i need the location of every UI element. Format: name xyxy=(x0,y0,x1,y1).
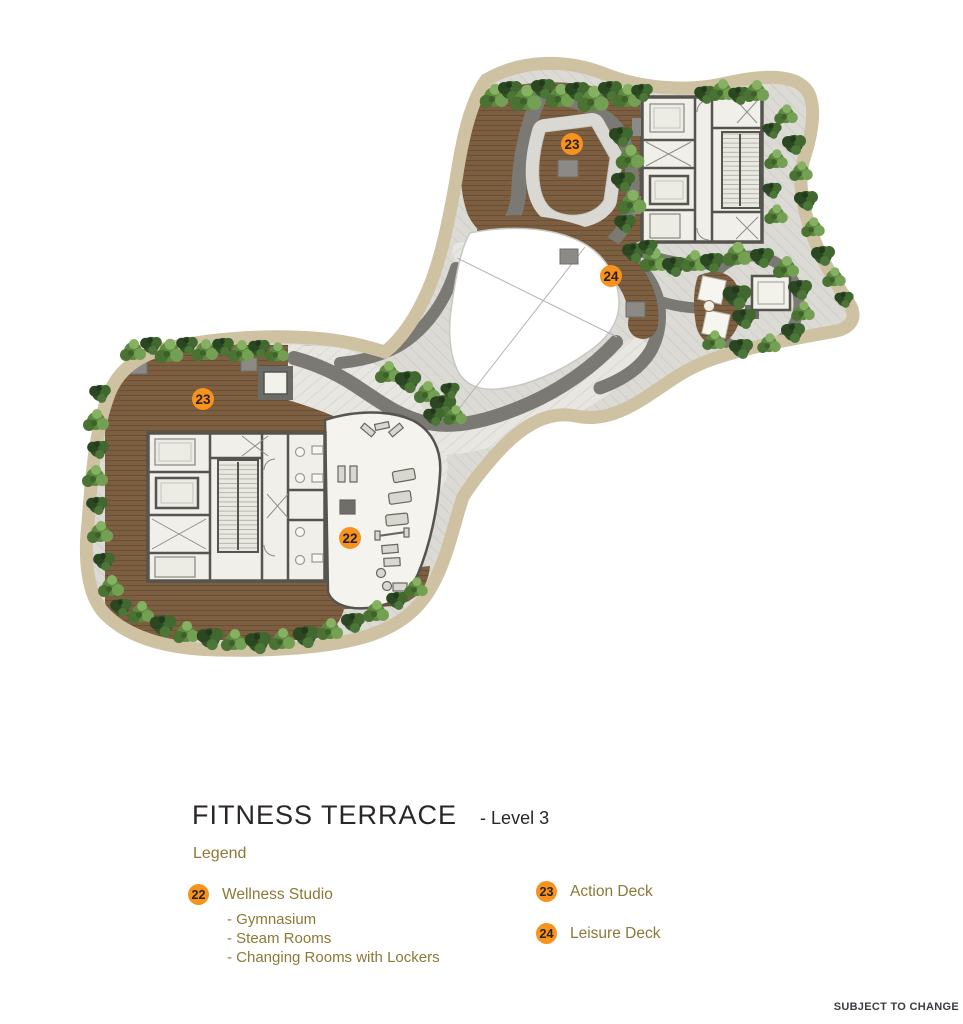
deck-stair-exit xyxy=(258,366,293,400)
title-block: FITNESS TERRACE - Level 3 xyxy=(192,800,549,831)
legend-sub-gymnasium: - Gymnasium xyxy=(227,910,508,929)
plan-marker-wellness-studio: 22 xyxy=(339,527,361,549)
page-title: FITNESS TERRACE xyxy=(192,800,457,831)
north-tower-core xyxy=(632,97,762,242)
floor-plan-page: 23 24 23 22 FITNESS TERRACE - Level 3 Le… xyxy=(0,0,963,1024)
legend-sub-steam-rooms: - Steam Rooms xyxy=(227,929,508,948)
legend-label-wellness-studio: Wellness Studio xyxy=(222,886,333,904)
legend-sub-changing-rooms: - Changing Rooms with Lockers xyxy=(227,948,508,967)
plan-marker-action-deck-south: 23 xyxy=(192,388,214,410)
legend-item-wellness-studio: 22 Wellness Studio xyxy=(188,884,508,905)
legend-label-leisure-deck: Leisure Deck xyxy=(570,925,660,943)
disclaimer-text: SUBJECT TO CHANGE xyxy=(834,1001,959,1013)
plan-marker-action-deck-north: 23 xyxy=(561,133,583,155)
legend-label-action-deck: Action Deck xyxy=(570,883,653,901)
site-plan-graphic xyxy=(0,0,963,700)
legend-sub-items: - Gymnasium - Steam Rooms - Changing Roo… xyxy=(227,910,508,967)
legend-badge-24: 24 xyxy=(536,923,557,944)
legend-heading: Legend xyxy=(193,845,246,863)
plan-marker-leisure-deck: 24 xyxy=(600,265,622,287)
legend-item-leisure-deck: 24 Leisure Deck xyxy=(536,923,756,944)
legend-column-2: 23 Action Deck 24 Leisure Deck xyxy=(536,881,756,944)
legend-badge-23: 23 xyxy=(536,881,557,902)
legend-column-1: 22 Wellness Studio - Gymnasium - Steam R… xyxy=(188,884,508,967)
legend-badge-22: 22 xyxy=(188,884,209,905)
level-label: - Level 3 xyxy=(480,808,549,829)
legend-item-action-deck: 23 Action Deck xyxy=(536,881,756,902)
